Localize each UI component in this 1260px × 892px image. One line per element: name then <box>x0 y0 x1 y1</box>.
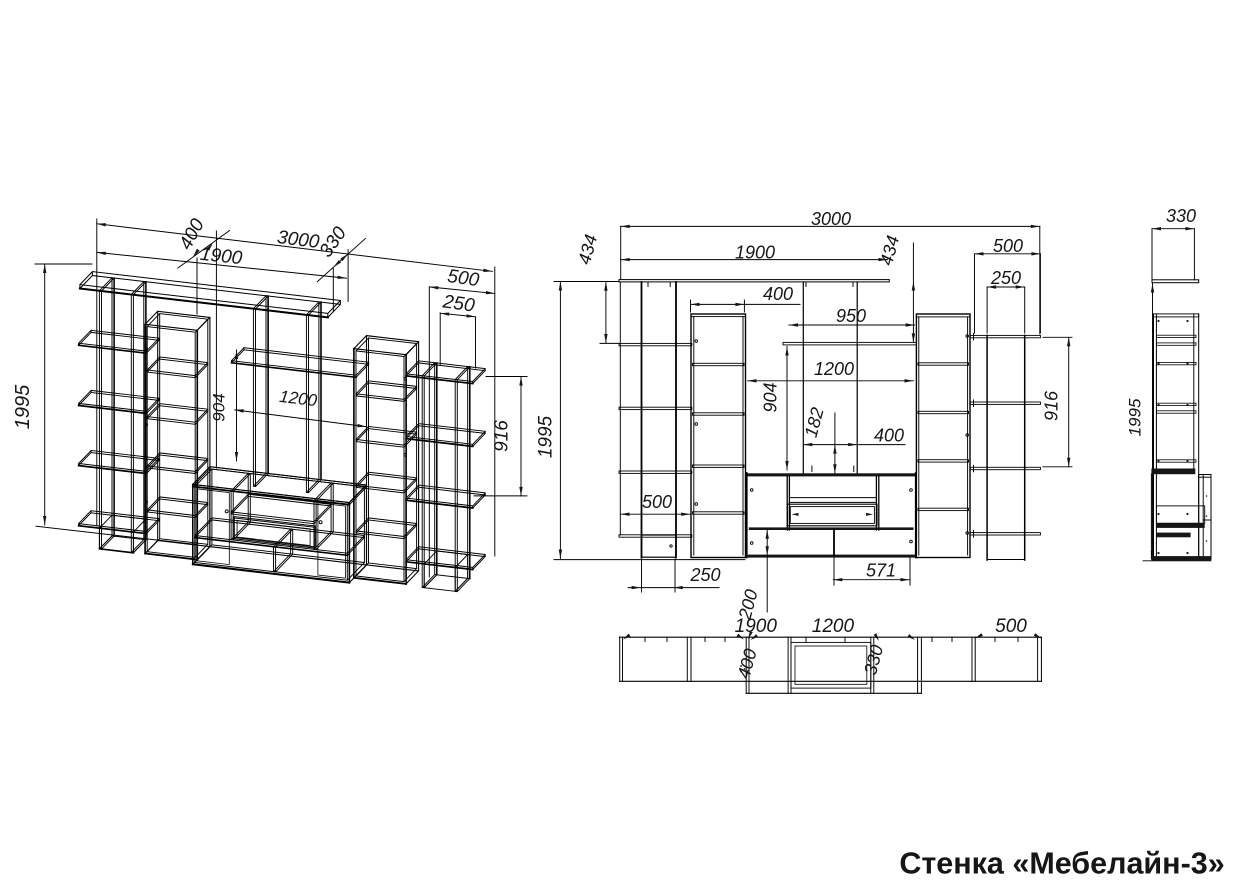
svg-text:500: 500 <box>995 616 1027 637</box>
svg-text:3000: 3000 <box>811 209 851 229</box>
svg-text:1200: 1200 <box>814 359 854 379</box>
svg-text:250: 250 <box>689 565 720 585</box>
svg-text:916: 916 <box>1042 390 1062 421</box>
svg-text:1900: 1900 <box>735 242 775 262</box>
svg-text:1995: 1995 <box>536 415 557 458</box>
svg-text:1200: 1200 <box>278 387 318 411</box>
svg-text:950: 950 <box>836 306 866 326</box>
svg-text:500: 500 <box>642 492 672 512</box>
svg-text:500: 500 <box>993 236 1023 256</box>
svg-text:1995: 1995 <box>12 384 34 429</box>
svg-text:916: 916 <box>492 420 513 452</box>
svg-text:1200: 1200 <box>812 616 855 637</box>
svg-text:904: 904 <box>210 393 229 421</box>
svg-text:250: 250 <box>990 268 1021 288</box>
svg-text:400: 400 <box>734 647 761 681</box>
svg-text:330: 330 <box>1166 206 1196 226</box>
svg-text:434: 434 <box>574 232 601 266</box>
svg-text:400: 400 <box>874 426 904 446</box>
svg-text:434: 434 <box>876 233 903 267</box>
svg-text:571: 571 <box>866 561 896 581</box>
svg-text:1900: 1900 <box>735 616 778 637</box>
svg-text:182: 182 <box>801 405 828 439</box>
svg-text:400: 400 <box>763 284 793 304</box>
svg-text:904: 904 <box>761 382 781 412</box>
svg-text:Стенка «Мебелайн-3»: Стенка «Мебелайн-3» <box>899 847 1224 881</box>
svg-text:1995: 1995 <box>1126 398 1145 436</box>
svg-text:500: 500 <box>446 266 481 291</box>
svg-text:330: 330 <box>860 643 887 677</box>
svg-text:3000: 3000 <box>276 227 321 253</box>
